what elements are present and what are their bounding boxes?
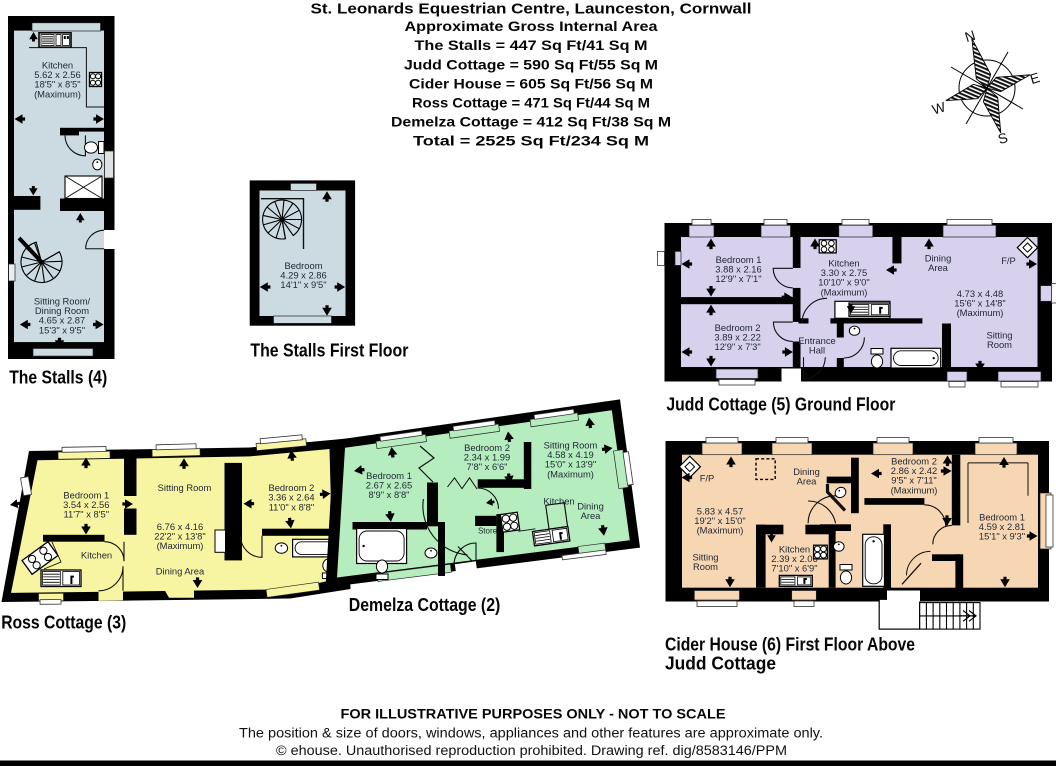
svg-text:Ross Cottage = 471 Sq Ft/44 Sq: Ross Cottage = 471 Sq Ft/44 Sq M [412,94,650,110]
svg-text:Sitting Room: Sitting Room [158,482,212,493]
svg-text:Kitchen: Kitchen [543,496,574,507]
svg-text:Room: Room [987,339,1012,350]
svg-text:(Maximum): (Maximum) [821,286,868,297]
svg-text:Judd Cottage (5) Ground Floor: Judd Cottage (5) Ground Floor [666,395,895,415]
svg-text:Cider House = 605 Sq Ft/56 Sq: Cider House = 605 Sq Ft/56 Sq M [409,75,653,91]
svg-text:(Maximum): (Maximum) [547,468,594,479]
svg-text:The Stalls (4): The Stalls (4) [9,368,107,388]
svg-text:Hall: Hall [809,345,825,356]
svg-text:15'1" x 9'3": 15'1" x 9'3" [979,531,1025,542]
svg-text:Judd Cottage = 590 Sq Ft/55 Sq: Judd Cottage = 590 Sq Ft/55 Sq M [404,56,658,72]
svg-text:Area: Area [928,262,949,273]
svg-text:Cider House (6) First Floor Ab: Cider House (6) First Floor Above [665,635,915,655]
svg-text:Total = 2525 Sq Ft/234 Sq M: Total = 2525 Sq Ft/234 Sq M [413,133,649,149]
svg-text:Area: Area [581,510,602,521]
svg-text:(Maximum): (Maximum) [697,525,744,536]
svg-text:Demelza Cottage = 412 Sq Ft/38: Demelza Cottage = 412 Sq Ft/38 Sq M [391,114,671,130]
svg-text:Kitchen: Kitchen [81,550,112,561]
svg-text:The Stalls = 447 Sq Ft/41 Sq: The Stalls = 447 Sq Ft/41 Sq M [415,37,648,53]
svg-text:(Maximum): (Maximum) [157,540,204,551]
svg-text:(Maximum): (Maximum) [957,307,1004,318]
svg-text:7'10" x 6'9": 7'10" x 6'9" [771,563,817,574]
svg-text:© ehouse. Unauthorised reprodu: © ehouse. Unauthorised reproduction proh… [276,743,787,759]
svg-text:The position & size of doors,: The position & size of doors, windows, a… [239,725,823,741]
svg-text:St. Leonards Equestrian Centre: St. Leonards Equestrian Centre, Launcest… [311,1,752,18]
svg-text:Judd Cottage: Judd Cottage [665,654,776,674]
svg-text:F/P: F/P [1001,255,1016,266]
svg-text:Area: Area [797,475,818,486]
svg-text:14'1" x 9'5": 14'1" x 9'5" [280,279,326,290]
svg-text:Store: Store [478,527,498,536]
svg-text:12'9" x 7'3": 12'9" x 7'3" [714,341,760,352]
svg-text:Ross Cottage (3): Ross Cottage (3) [1,612,126,632]
svg-text:Approximate Gross Internal Are: Approximate Gross Internal Area [405,18,658,34]
svg-text:Room: Room [693,561,718,572]
svg-text:F/P: F/P [700,473,715,484]
svg-text:8'9" x 8'8": 8'9" x 8'8" [369,489,410,500]
svg-text:12'9" x 7'1": 12'9" x 7'1" [715,273,761,284]
svg-text:15'3" x 9'5": 15'3" x 9'5" [39,324,85,335]
svg-text:The Stalls First Floor: The Stalls First Floor [250,341,408,361]
svg-text:11'0" x 8'8": 11'0" x 8'8" [269,501,315,512]
svg-text:11'7" x 8'5": 11'7" x 8'5" [64,509,110,520]
svg-text:FOR ILLUSTRATIVE PURPOSES ONLY: FOR ILLUSTRATIVE PURPOSES ONLY - NOT TO … [341,707,726,723]
svg-text:(Maximum): (Maximum) [34,88,81,99]
svg-text:7'8" x 6'6": 7'8" x 6'6" [467,461,508,472]
svg-text:Dining Area: Dining Area [156,566,205,577]
svg-text:(Maximum): (Maximum) [891,484,938,495]
svg-text:Demelza Cottage (2): Demelza Cottage (2) [349,595,501,615]
